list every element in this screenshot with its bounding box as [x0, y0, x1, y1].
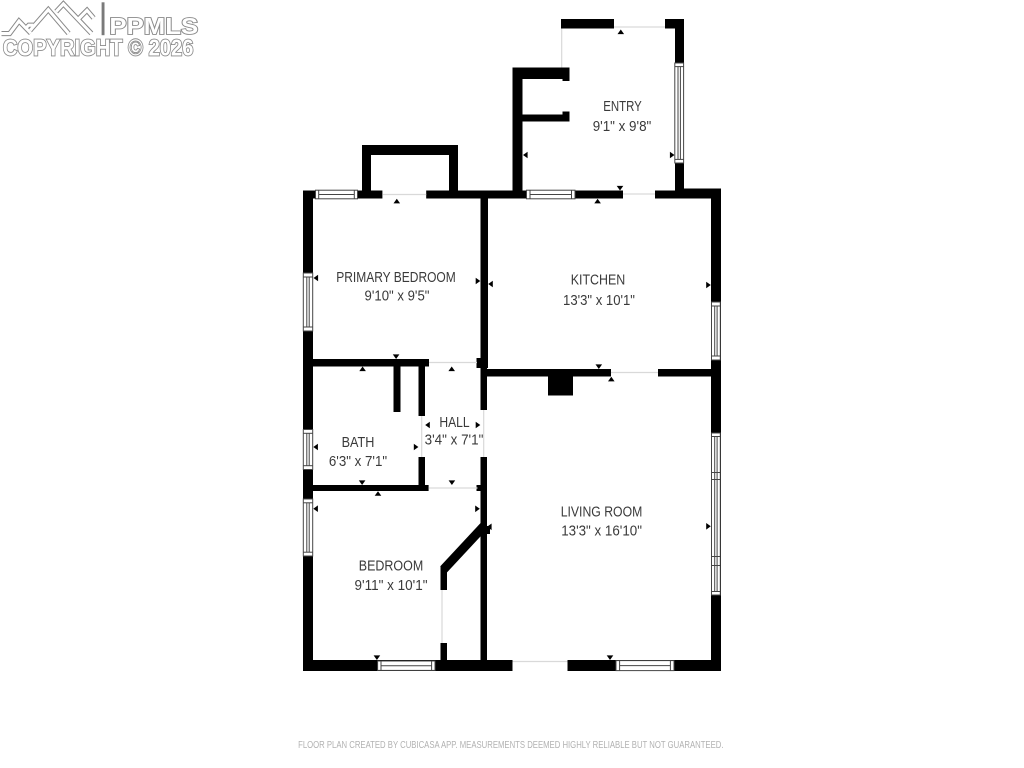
svg-text:3'4" x 7'1": 3'4" x 7'1" [425, 433, 484, 449]
svg-text:9'10" x 9'5": 9'10" x 9'5" [365, 289, 430, 305]
svg-text:HALL: HALL [439, 415, 469, 431]
svg-text:13'3" x 16'10": 13'3" x 16'10" [561, 524, 642, 540]
svg-text:6'3" x 7'1": 6'3" x 7'1" [329, 454, 387, 470]
svg-text:PRIMARY BEDROOM: PRIMARY BEDROOM [336, 270, 456, 286]
svg-text:KITCHEN: KITCHEN [571, 273, 626, 289]
svg-text:LIVING ROOM: LIVING ROOM [561, 505, 643, 521]
svg-text:COPYRIGHT © 2026: COPYRIGHT © 2026 [3, 34, 194, 60]
svg-text:BEDROOM: BEDROOM [359, 558, 423, 574]
svg-text:FLOOR PLAN CREATED BY CUBICASA: FLOOR PLAN CREATED BY CUBICASA APP. MEAS… [298, 740, 723, 751]
svg-text:9'11" x 10'1": 9'11" x 10'1" [355, 578, 428, 594]
svg-text:13'3" x 10'1": 13'3" x 10'1" [563, 293, 635, 309]
svg-text:ENTRY: ENTRY [603, 99, 642, 115]
svg-text:9'1" x 9'8": 9'1" x 9'8" [593, 119, 652, 135]
svg-text:BATH: BATH [342, 435, 375, 451]
